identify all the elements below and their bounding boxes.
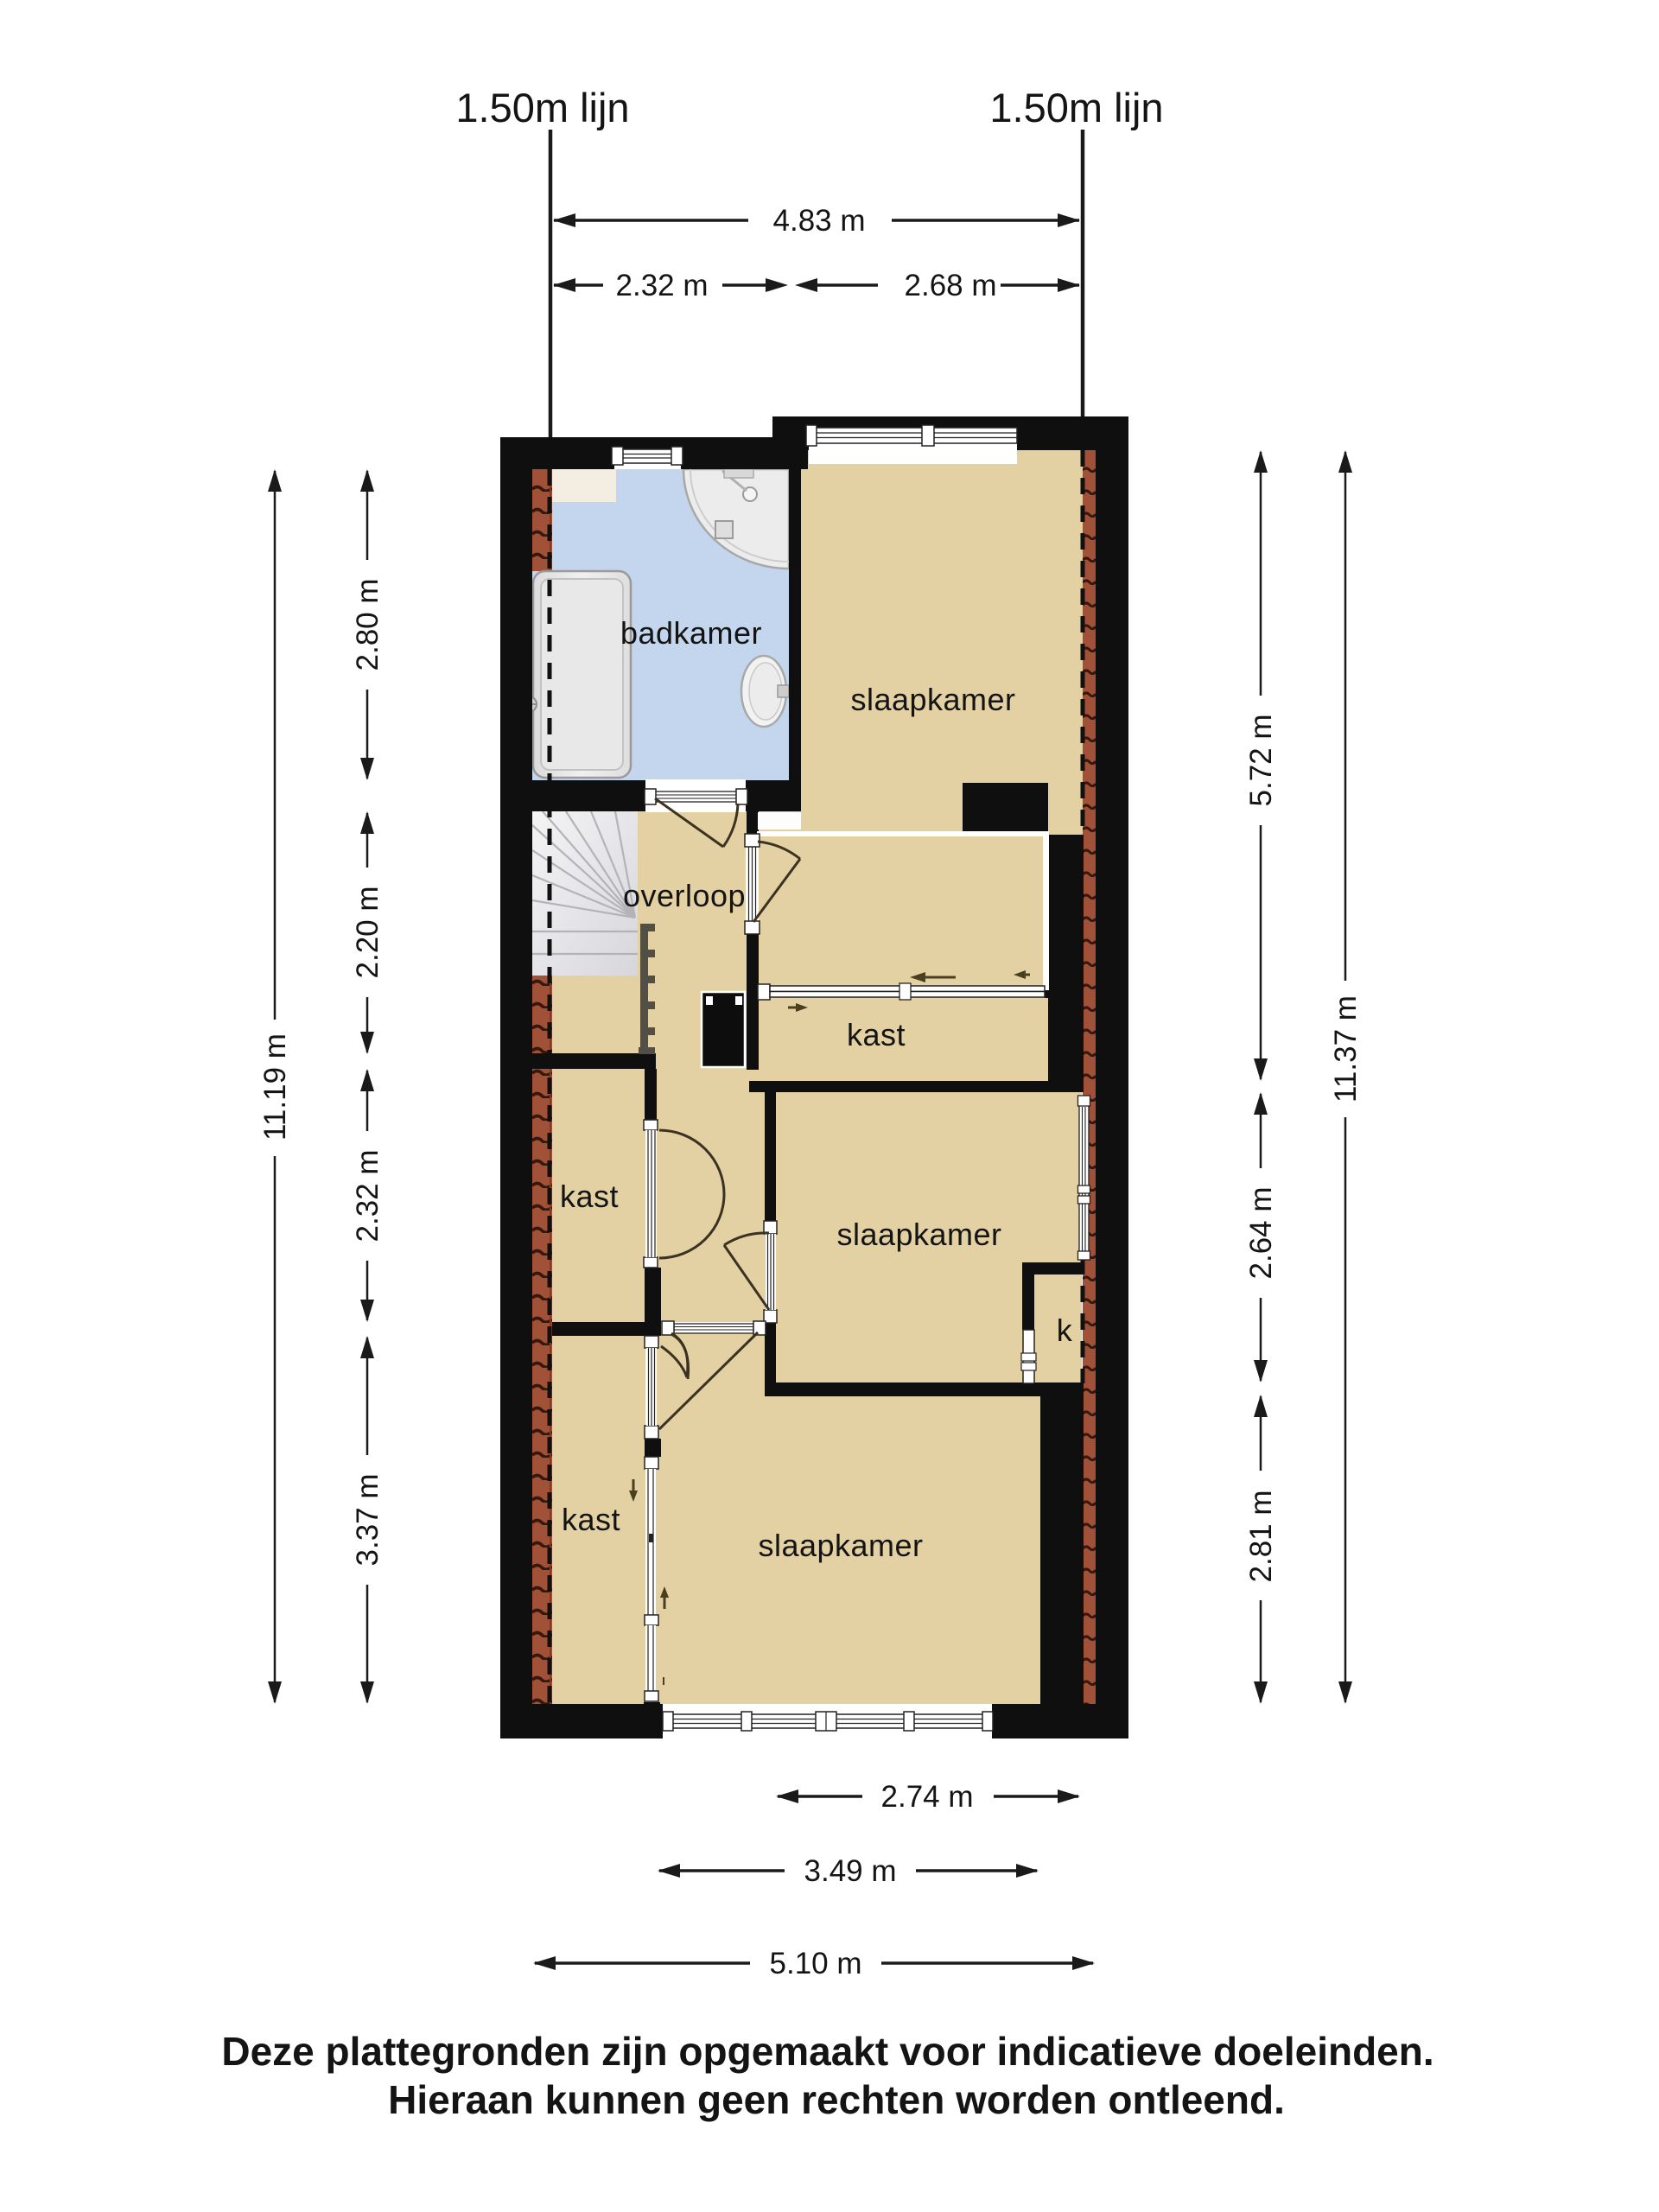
svg-text:2.20 m: 2.20 m [351, 887, 385, 979]
svg-text:kast: kast [562, 1502, 620, 1537]
svg-text:2.64 m: 2.64 m [1244, 1187, 1278, 1280]
svg-text:Hieraan kunnen geen rechten wo: Hieraan kunnen geen rechten worden ontle… [388, 2077, 1285, 2122]
svg-text:badkamer: badkamer [620, 615, 762, 651]
svg-text:k: k [1057, 1313, 1073, 1348]
svg-text:1.50m lijn: 1.50m lijn [989, 85, 1163, 130]
svg-text:3.49 m: 3.49 m [804, 1854, 897, 1888]
svg-text:1.50m lijn: 1.50m lijn [455, 85, 629, 130]
svg-text:kast: kast [847, 1017, 906, 1052]
svg-text:2.74 m: 2.74 m [881, 1780, 974, 1814]
svg-text:2.32 m: 2.32 m [351, 1150, 385, 1243]
svg-text:overloop: overloop [623, 878, 746, 913]
svg-text:5.72 m: 5.72 m [1244, 715, 1278, 807]
svg-text:slaapkamer: slaapkamer [836, 1217, 1001, 1252]
svg-text:2.81 m: 2.81 m [1244, 1491, 1278, 1583]
svg-text:Deze plattegronden zijn opgema: Deze plattegronden zijn opgemaakt voor i… [221, 2029, 1433, 2074]
svg-text:kast: kast [560, 1179, 619, 1214]
svg-text:slaapkamer: slaapkamer [758, 1528, 923, 1563]
svg-text:slaapkamer: slaapkamer [850, 682, 1015, 717]
svg-text:11.19 m: 11.19 m [258, 1033, 292, 1141]
svg-text:2.32 m: 2.32 m [616, 269, 709, 302]
svg-text:2.80 m: 2.80 m [351, 579, 385, 671]
svg-text:4.83 m: 4.83 m [773, 204, 866, 238]
svg-text:3.37 m: 3.37 m [351, 1474, 385, 1567]
svg-text:2.68 m: 2.68 m [905, 269, 997, 302]
svg-text:5.10 m: 5.10 m [770, 1947, 862, 1980]
svg-text:11.37 m: 11.37 m [1329, 995, 1363, 1103]
